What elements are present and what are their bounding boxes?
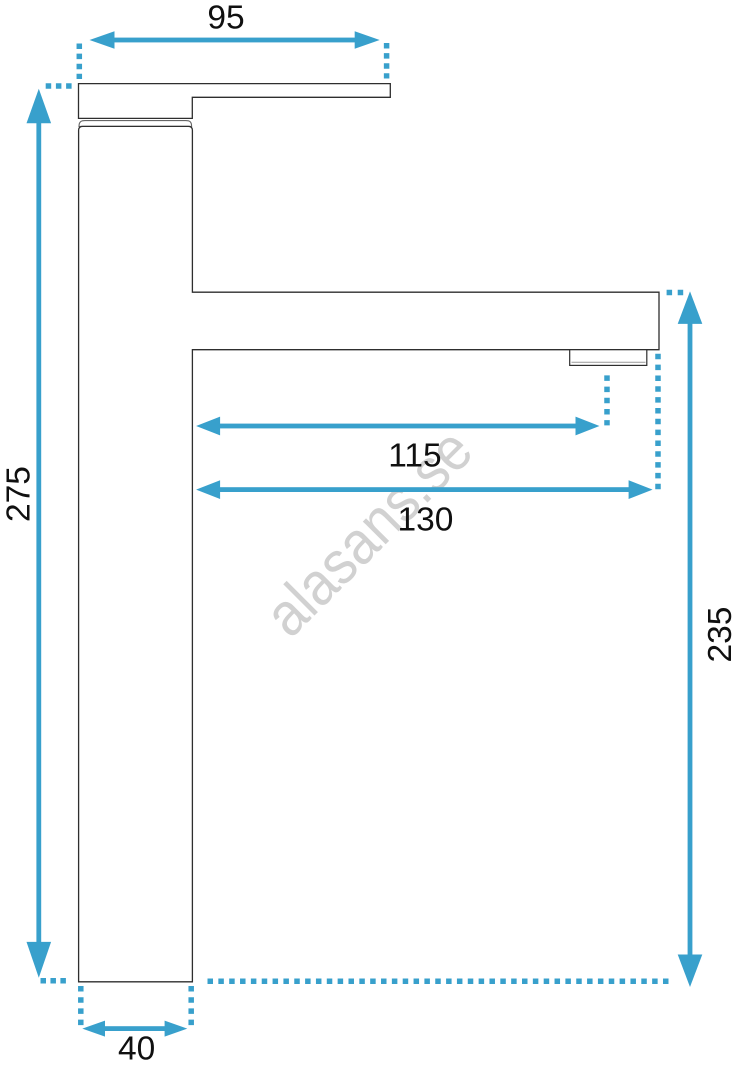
svg-text:115: 115 — [388, 437, 441, 474]
svg-text:235: 235 — [702, 607, 739, 663]
svg-text:275: 275 — [1, 466, 38, 522]
svg-text:40: 40 — [118, 1030, 155, 1067]
svg-text:95: 95 — [207, 0, 244, 37]
svg-text:130: 130 — [398, 502, 454, 539]
